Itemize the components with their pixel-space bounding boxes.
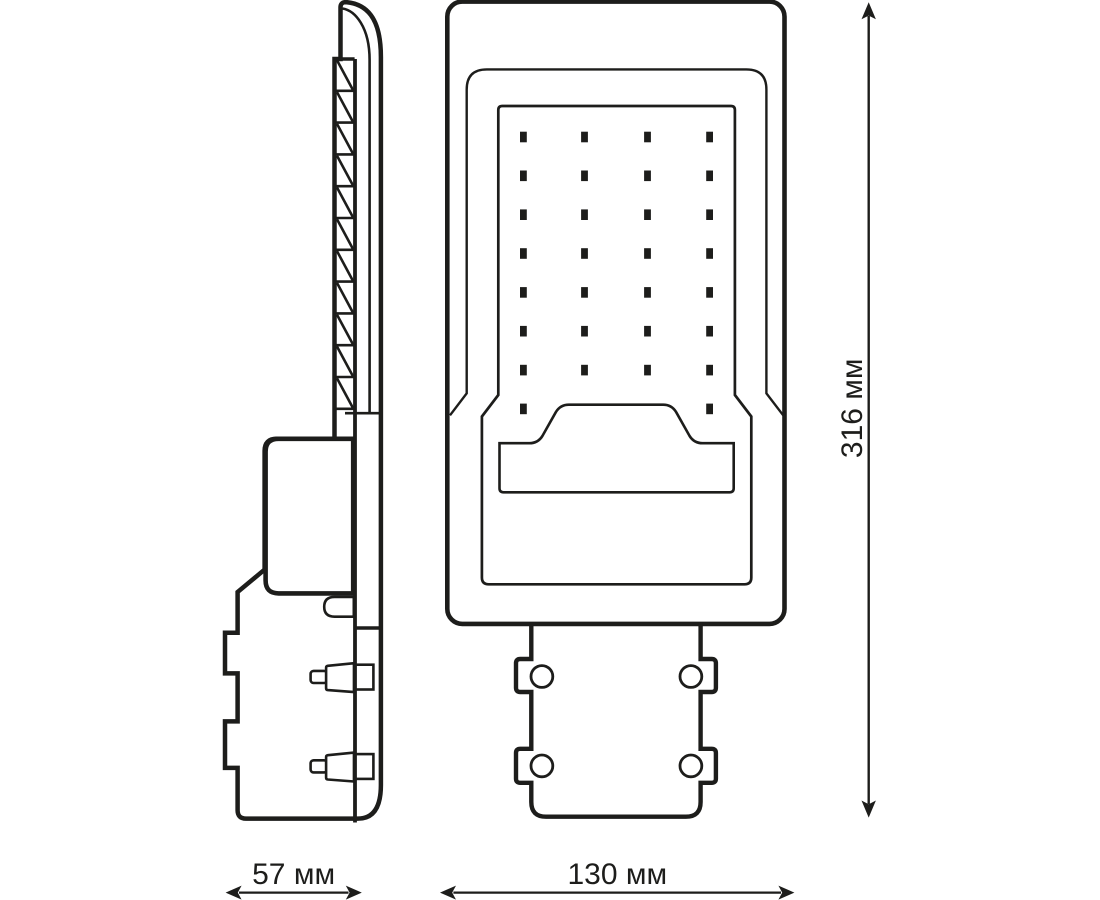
svg-text:57 мм: 57 мм: [252, 858, 335, 891]
svg-text:130 мм: 130 мм: [567, 858, 667, 891]
svg-text:316 мм: 316 мм: [836, 358, 869, 458]
